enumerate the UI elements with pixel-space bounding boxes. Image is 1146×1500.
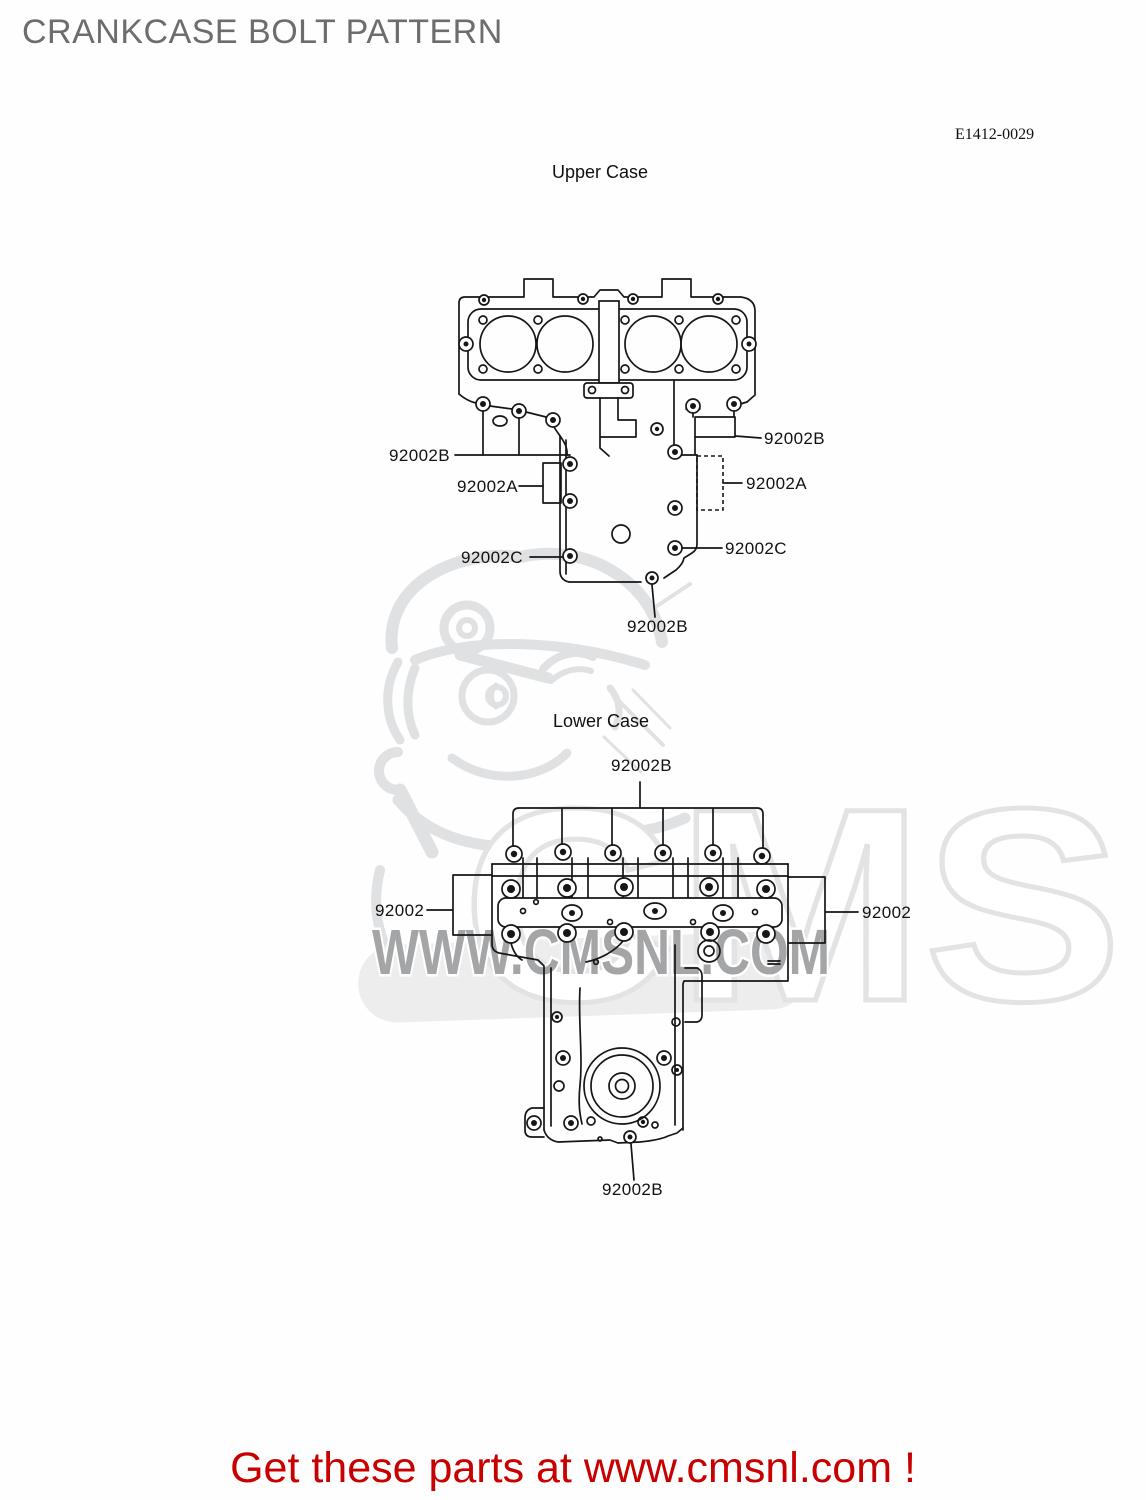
- part-number-label: 92002A: [457, 477, 518, 497]
- part-number-label: 92002B: [611, 756, 672, 776]
- footer-link[interactable]: Get these parts at www.cmsnl.com !: [0, 1444, 1146, 1493]
- lower-crankcase-drawing: [427, 782, 858, 1180]
- part-number-label: 92002: [375, 901, 424, 921]
- part-number-label: 92002A: [746, 474, 807, 494]
- drawing-code: E1412-0029: [955, 126, 1034, 144]
- part-number-label: 92002: [862, 903, 911, 923]
- upper-case-caption: Upper Case: [552, 162, 648, 183]
- part-number-label: 92002B: [764, 429, 825, 449]
- watermark-url-text: WWW.CMSNL.COM: [372, 916, 830, 988]
- parts-diagram-page: CMS WWW.CMSNL.COM: [0, 0, 1146, 1500]
- page-title: CRANKCASE BOLT PATTERN: [22, 13, 503, 52]
- watermark-brand-text: CMS: [462, 752, 1122, 1059]
- part-number-label: 92002B: [627, 617, 688, 637]
- part-number-label: 92002B: [389, 446, 450, 466]
- cms-mascot-illustration: [357, 554, 811, 1024]
- crankcase-line-art: [0, 0, 1146, 1500]
- part-number-label: 92002C: [725, 539, 787, 559]
- lower-case-caption: Lower Case: [553, 711, 649, 732]
- part-number-label: 92002C: [461, 548, 523, 568]
- cms-watermark: CMS WWW.CMSNL.COM: [0, 0, 1146, 1500]
- part-number-label: 92002B: [602, 1180, 663, 1200]
- mascot-arm-shape: [357, 930, 811, 1024]
